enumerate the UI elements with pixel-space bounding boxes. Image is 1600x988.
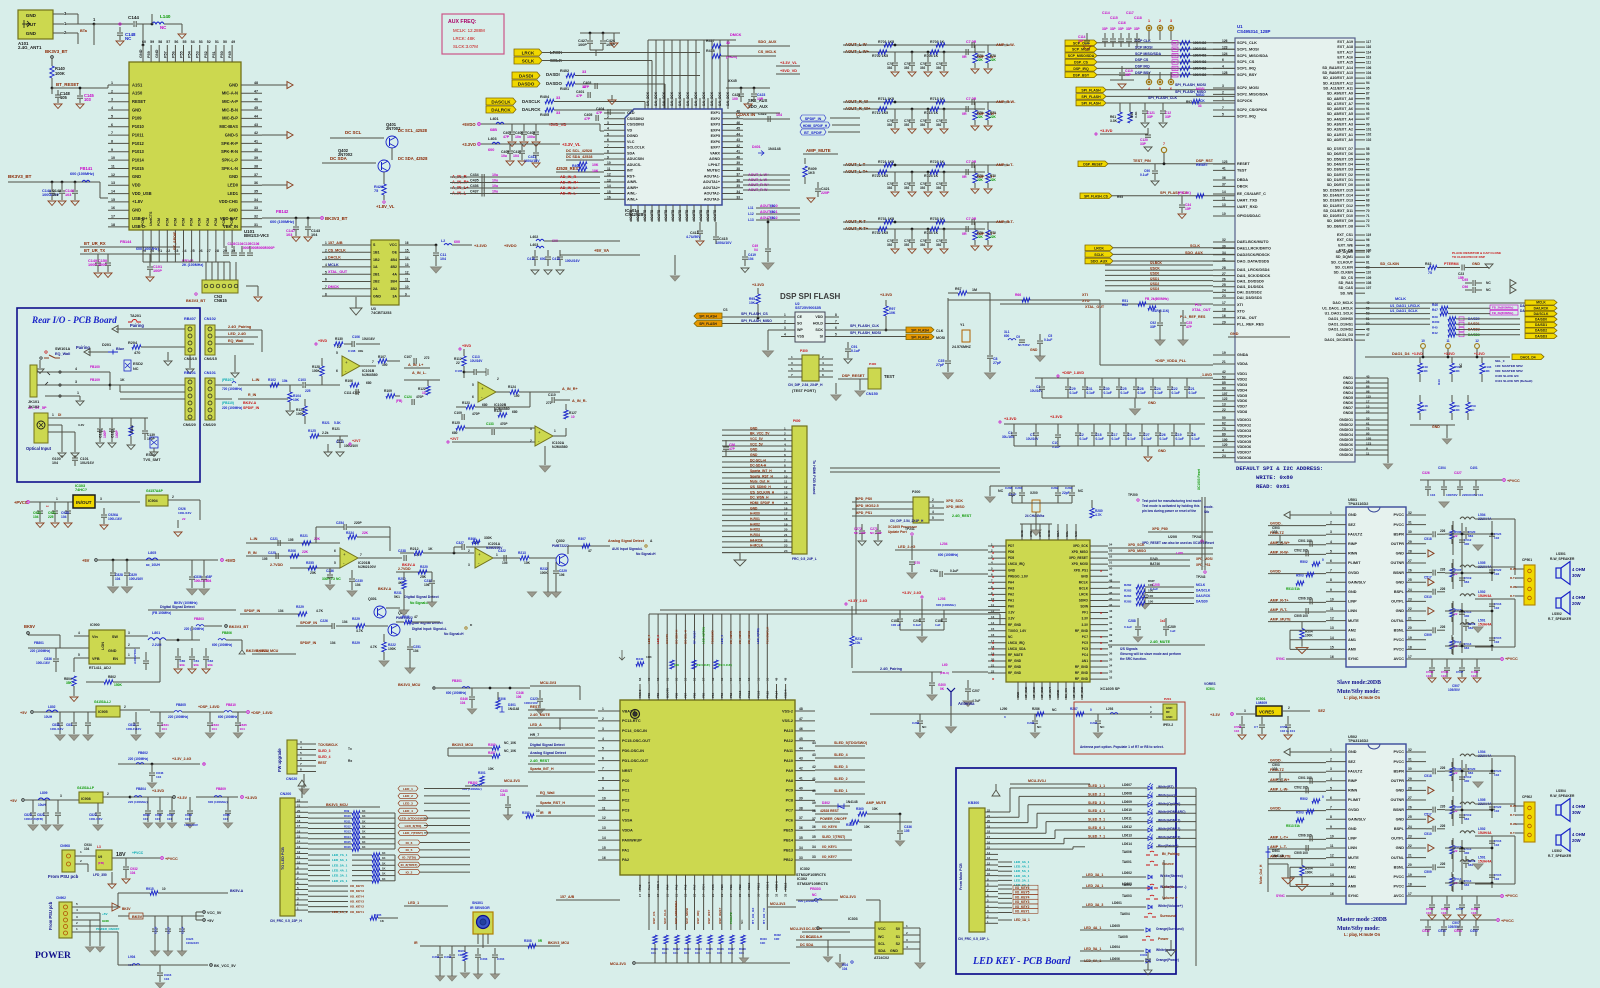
svg-text:I2S Signals: I2S Signals <box>1120 647 1138 651</box>
svg-text:FB_2k(600MHz): FB_2k(600MHz) <box>1492 311 1513 315</box>
svg-text:U1_DAO1_SCLK: U1_DAO1_SCLK <box>1390 309 1418 313</box>
svg-text:DAO1_D3: DAO1_D3 <box>1336 333 1353 337</box>
svg-text:NRST: NRST <box>622 769 633 773</box>
svg-text:G4157A&P: G4157A&P <box>146 489 164 493</box>
svg-text:20W: 20W <box>1572 601 1581 606</box>
svg-text:R704 1K: R704 1K <box>924 54 939 58</box>
svg-text:DAO1_D4: DAO1_D4 <box>1392 352 1410 356</box>
svg-text:GNDIO7: GNDIO7 <box>1339 448 1353 452</box>
svg-text:Digital Signal Detect: Digital Signal Detect <box>404 595 440 599</box>
svg-text:40: 40 <box>254 148 258 152</box>
svg-text:P59: P59 <box>656 692 660 698</box>
svg-text:40: 40 <box>736 155 740 159</box>
svg-text:MIC-A-N: MIC-A-N <box>222 91 238 96</box>
svg-text:DAI_D3/DSD3: DAI_D3/DSD3 <box>1237 296 1262 300</box>
svg-text:103: 103 <box>1272 530 1278 534</box>
svg-text:PC8: PC8 <box>786 799 793 803</box>
svg-text:40: 40 <box>1109 627 1113 631</box>
svg-text:52: 52 <box>1109 555 1113 559</box>
svg-text:0.1uF: 0.1uF <box>1155 391 1163 395</box>
svg-text:37: 37 <box>736 173 740 177</box>
svg-text:5: 5 <box>1159 87 1161 91</box>
svg-text:48: 48 <box>254 81 258 85</box>
svg-text:7: 7 <box>1163 142 1165 146</box>
svg-text:4: 4 <box>607 127 609 131</box>
svg-text:C106: C106 <box>352 335 360 339</box>
svg-text:54: 54 <box>191 40 195 44</box>
svg-text:PC10: PC10 <box>756 690 760 698</box>
svg-text:R513 51k: R513 51k <box>1286 824 1300 828</box>
svg-text:LD602: LD602 <box>1122 871 1132 875</box>
svg-text:Q302: Q302 <box>556 539 565 543</box>
svg-text:41: 41 <box>812 777 816 781</box>
svg-text:392: 392 <box>920 186 926 190</box>
svg-text:FB805: FB805 <box>176 703 186 707</box>
svg-text:XX45: XX45 <box>728 79 737 83</box>
svg-text:XTO: XTO <box>1237 310 1245 314</box>
svg-text:L802: L802 <box>48 705 56 709</box>
svg-text:C144: C144 <box>128 15 139 20</box>
svg-text:684: 684 <box>1464 646 1469 650</box>
svg-text:3A: 3A <box>392 294 397 298</box>
svg-text:46: 46 <box>254 98 258 102</box>
svg-text:VDD-1: VDD-1 <box>775 881 779 890</box>
svg-text:DGND: DGND <box>627 134 638 138</box>
svg-text:22K: 22K <box>990 115 997 119</box>
svg-text:9: 9 <box>602 786 604 790</box>
svg-text:R212: R212 <box>410 547 419 551</box>
svg-text:5: 5 <box>835 333 837 337</box>
svg-text:+3.3VD: +3.3VD <box>245 796 257 800</box>
svg-text:2: 2 <box>107 792 109 796</box>
svg-text:GND: GND <box>229 208 238 213</box>
svg-text:8: 8 <box>1330 815 1332 819</box>
svg-text:R102: R102 <box>268 378 276 382</box>
svg-text:LED_1A_1: LED_1A_1 <box>332 910 348 914</box>
svg-text:SLED_4: SLED_4 <box>834 753 848 757</box>
svg-text:MUTE: MUTE <box>1348 619 1359 623</box>
svg-text:LED_4A_1: LED_4A_1 <box>1014 865 1030 869</box>
svg-text:L205: L205 <box>1176 551 1183 555</box>
svg-text:11: 11 <box>1446 339 1450 343</box>
svg-text:AINL-: AINL- <box>627 192 638 196</box>
svg-text:SAI_DCK: SAI_DCK <box>710 91 714 106</box>
svg-text:LED_1A_1: LED_1A_1 <box>1014 918 1030 922</box>
svg-text:119: 119 <box>1366 233 1371 237</box>
svg-text:1K: 1K <box>362 819 366 823</box>
svg-text:12: 12 <box>297 850 301 854</box>
svg-text:220 (100MHz): 220 (100MHz) <box>222 406 242 410</box>
svg-text:105/50V: 105/50V <box>1448 688 1461 692</box>
svg-text:SD_D1/EXT_D1: SD_D1/EXT_D1 <box>1327 178 1353 182</box>
svg-text:P1011: P1011 <box>132 132 144 137</box>
svg-text:DC-SDA-H: DC-SDA-H <box>750 464 767 468</box>
svg-text:R229: R229 <box>352 617 360 621</box>
svg-text:VCC_5V: VCC_5V <box>207 911 222 915</box>
svg-text:SD_A0/EXT_A0: SD_A0/EXT_A0 <box>1327 138 1353 142</box>
svg-text:R220: R220 <box>420 565 428 569</box>
svg-text:330: 330 <box>1464 542 1469 546</box>
svg-text:RESET: RESET <box>132 99 146 104</box>
svg-text:+5VDO: +5VDO <box>504 244 517 248</box>
svg-text:10u: 10u <box>492 173 498 177</box>
svg-text:IR: IR <box>414 941 418 945</box>
svg-text:PD7: PD7 <box>1008 544 1014 548</box>
svg-text:4: 4 <box>300 746 302 750</box>
svg-text:100L/16V: 100L/16V <box>50 727 64 731</box>
svg-text:6: 6 <box>1222 58 1224 62</box>
svg-text:SCP1_BSY: SCP1_BSY <box>1237 73 1257 77</box>
svg-text:I/O_KEY7: I/O_KEY7 <box>822 855 837 859</box>
svg-text:DSP_IRQ: DSP_IRQ <box>696 910 700 924</box>
svg-text:54: 54 <box>1109 542 1113 546</box>
svg-text:KB300: KB300 <box>968 801 979 805</box>
svg-text:Test mode is activated by hold: Test mode is activated by holding this <box>1142 504 1200 508</box>
svg-text:41: 41 <box>254 139 258 143</box>
svg-text:65: 65 <box>1366 183 1370 187</box>
svg-text:TP243: TP243 <box>1196 575 1206 579</box>
svg-text:GND: GND <box>1166 715 1172 719</box>
svg-text:104: 104 <box>1441 674 1446 678</box>
svg-text:13: 13 <box>405 263 409 267</box>
svg-text:94: 94 <box>1366 81 1370 85</box>
svg-text:EE_CS/UART_C: EE_CS/UART_C <box>1237 192 1266 196</box>
svg-text:H-RX2: H-RX2 <box>750 522 760 526</box>
svg-text:4: 4 <box>784 333 786 337</box>
svg-text:DI: DI <box>58 413 61 417</box>
svg-text:SCL: SCL <box>1065 531 1069 537</box>
svg-text:NC: NC <box>1459 363 1463 368</box>
svg-text:AM0: AM0 <box>1348 885 1356 889</box>
svg-text:PA12: PA12 <box>784 739 793 743</box>
svg-text:DC_WSN_H: DC_WSN_H <box>750 496 769 500</box>
svg-text:1K: 1K <box>382 867 386 871</box>
svg-text:AD_IN_L+: AD_IN_L+ <box>560 186 579 190</box>
svg-text:45: 45 <box>254 106 258 110</box>
svg-text:0.1uF: 0.1uF <box>1138 391 1146 395</box>
svg-text:57: 57 <box>166 40 170 44</box>
svg-text:CS495314_128P: CS495314_128P <box>1237 29 1271 34</box>
svg-text:C290: C290 <box>1027 721 1035 725</box>
svg-text:100: 100 <box>732 97 738 101</box>
svg-text:SDA: SDA <box>1056 530 1060 537</box>
svg-text:14: 14 <box>602 836 606 840</box>
svg-text:I/O_KEY4: I/O_KEY4 <box>1015 895 1030 899</box>
svg-text:33: 33 <box>556 96 560 100</box>
svg-text:0.1uF: 0.1uF <box>1121 391 1129 395</box>
svg-text:LED_4A_1: LED_4A_1 <box>1014 874 1030 878</box>
svg-text:OUTNL: OUTNL <box>1391 619 1405 623</box>
svg-text:4: 4 <box>822 361 824 365</box>
svg-text:SAI_DCK: SAI_DCK <box>686 91 690 106</box>
svg-text:47P: 47P <box>729 447 736 451</box>
svg-text:C104: C104 <box>236 242 244 246</box>
svg-text:RF_GND: RF_GND <box>1008 665 1022 669</box>
svg-text:R418: R418 <box>706 49 715 53</box>
svg-text:330: 330 <box>1464 779 1469 783</box>
svg-text:29: 29 <box>1408 540 1412 544</box>
svg-text:GND: GND <box>229 174 238 179</box>
svg-text:BAT46: BAT46 <box>1150 562 1160 566</box>
svg-text:GND: GND <box>1047 529 1051 537</box>
svg-text:P60: P60 <box>647 692 651 698</box>
svg-text:102: 102 <box>1494 877 1499 881</box>
svg-text:+: + <box>481 386 484 391</box>
svg-text:3: 3 <box>1330 530 1332 534</box>
svg-text:VCC_5V: VCC_5V <box>750 437 764 441</box>
svg-text:AUX Input Signal=L: AUX Input Signal=L <box>612 547 643 551</box>
svg-text:16: 16 <box>784 506 788 510</box>
svg-text:BK3V3_BT: BK3V3_BT <box>8 174 32 179</box>
svg-text:SPI_FLASH: SPI_FLASH <box>699 315 717 319</box>
svg-text:L290: L290 <box>1000 707 1007 711</box>
svg-text:100: 100 <box>1148 583 1153 587</box>
svg-text:GND: GND <box>108 649 117 653</box>
svg-text:TA603: TA603 <box>1122 894 1132 898</box>
svg-text:D401: D401 <box>752 145 761 149</box>
svg-text:13: 13 <box>607 178 611 182</box>
svg-text:DBDA: DBDA <box>1237 178 1248 182</box>
svg-text:GND: GND <box>26 13 37 18</box>
svg-text:C434: C434 <box>470 173 479 177</box>
svg-text:27: 27 <box>1408 559 1412 563</box>
svg-text:C95: C95 <box>1462 278 1468 282</box>
svg-text:15: 15 <box>1330 645 1334 649</box>
svg-text:L805: L805 <box>148 551 156 555</box>
svg-text:IO_2: IO_2 <box>406 870 413 874</box>
svg-text:10: 10 <box>1330 834 1334 838</box>
svg-text:4: 4 <box>602 737 604 741</box>
svg-text:VDD-CHG: VDD-CHG <box>219 199 238 204</box>
svg-text:GPIO3/DDAC: GPIO3/DDAC <box>1237 214 1261 218</box>
svg-text:(FB-0): (FB-0) <box>940 671 949 675</box>
svg-text:LED_3: LED_3 <box>720 635 724 644</box>
svg-text:56: 56 <box>174 40 178 44</box>
svg-text:5: 5 <box>1222 113 1224 117</box>
svg-text:59: 59 <box>150 40 154 44</box>
svg-text:87: 87 <box>1366 92 1370 96</box>
svg-text:U1_DAO1_LRCLK: U1_DAO1_LRCLK <box>1322 306 1353 310</box>
svg-text:104: 104 <box>206 579 212 583</box>
svg-text:P300: P300 <box>800 349 808 353</box>
svg-text:33P: 33P <box>1126 27 1133 31</box>
svg-text:L13: L13 <box>748 218 754 222</box>
svg-text:+5V_VA: +5V_VA <box>594 248 609 253</box>
svg-text:LED_3A_3: LED_3A_3 <box>1086 903 1103 907</box>
svg-text:LD612: LD612 <box>1122 825 1132 829</box>
svg-text:104: 104 <box>167 817 172 821</box>
svg-text:SPI_FLASH: SPI_FLASH <box>1081 102 1101 106</box>
svg-text:61: 61 <box>1366 422 1370 426</box>
svg-text:330K: 330K <box>484 536 493 540</box>
svg-text:UART_RXD: UART_RXD <box>1237 205 1258 209</box>
svg-text:14: 14 <box>1330 636 1334 640</box>
svg-text:CS/SDIN2: CS/SDIN2 <box>627 117 644 121</box>
svg-text:104: 104 <box>52 461 58 465</box>
svg-text:POWER: POWER <box>35 951 71 961</box>
svg-text:GND8: GND8 <box>1343 411 1353 415</box>
svg-text:90k: 90k <box>358 349 363 353</box>
svg-text:58: 58 <box>1366 147 1370 151</box>
svg-text:RINN: RINN <box>1348 789 1358 793</box>
svg-text:C294: C294 <box>1090 721 1098 725</box>
svg-text:SAI_DCK: SAI_DCK <box>694 91 698 106</box>
svg-text:LED_5(TDO/SWO): LED_5(TDO/SWO) <box>400 816 426 820</box>
svg-text:2.4G_MUTE: 2.4G_MUTE <box>530 713 551 717</box>
svg-text:MCU-3V3: MCU-3V3 <box>790 927 805 931</box>
svg-text:LED_6(TDI): LED_6(TDI) <box>405 824 422 828</box>
svg-text:104: 104 <box>1441 911 1446 915</box>
svg-text:RF_GND: RF_GND <box>1075 671 1089 675</box>
svg-text:12: 12 <box>602 816 606 820</box>
svg-text:1: 1 <box>791 355 793 359</box>
svg-text:SPI_FLASH: SPI_FLASH <box>911 335 929 339</box>
svg-text:SLED_6_1: SLED_6_1 <box>1088 826 1105 830</box>
svg-text:PA3: PA3 <box>638 884 642 890</box>
svg-text:22: 22 <box>182 517 186 521</box>
svg-text:TEST_PIN: TEST_PIN <box>1133 159 1151 163</box>
svg-text:47: 47 <box>254 89 258 93</box>
svg-text:GVDD: GVDD <box>1348 808 1359 812</box>
svg-text:Sparta_RST_H: Sparta_RST_H <box>750 474 774 478</box>
svg-text:4.7K: 4.7K <box>370 645 378 649</box>
svg-text:PA8: PA8 <box>786 779 793 783</box>
svg-text:392: 392 <box>904 186 910 190</box>
svg-text:1: 1 <box>52 413 54 417</box>
svg-text:RF_MATE: RF_MATE <box>1008 653 1023 657</box>
svg-text:2: 2 <box>80 859 82 863</box>
svg-text:PC7: PC7 <box>786 809 793 813</box>
svg-text:REST: REST <box>530 705 540 709</box>
svg-text:4: 4 <box>1330 540 1332 544</box>
svg-text:33: 33 <box>784 893 788 897</box>
svg-text:EXT_A16: EXT_A16 <box>1337 56 1353 60</box>
svg-text:FB806: FB806 <box>222 631 232 635</box>
svg-text:C115: C115 <box>1110 16 1118 20</box>
svg-text:BK5V (100MHz): BK5V (100MHz) <box>174 601 197 605</box>
svg-text:RST-: RST- <box>627 174 636 178</box>
svg-text:AMP_MUTE: AMP_MUTE <box>1270 618 1291 622</box>
svg-text:LRCK: 48K: LRCK: 48K <box>453 36 475 41</box>
svg-text:LD610: LD610 <box>1122 808 1132 812</box>
svg-text:AGND: AGND <box>709 157 720 161</box>
svg-text:+5V: +5V <box>10 799 17 803</box>
svg-text:6: 6 <box>822 367 824 371</box>
svg-text:100/0402: 100/0402 <box>1193 73 1207 77</box>
svg-text:R503: R503 <box>1296 574 1304 578</box>
svg-text:103: 103 <box>1366 76 1372 80</box>
svg-text:TPA3116D2: TPA3116D2 <box>1348 502 1368 506</box>
svg-text:SD_DQM0: SD_DQM0 <box>1336 250 1353 254</box>
svg-text:VDD1: VDD1 <box>1237 372 1247 376</box>
svg-text:CP501: CP501 <box>1522 558 1532 562</box>
svg-text:38: 38 <box>799 806 803 810</box>
svg-text:26: 26 <box>1408 569 1412 573</box>
svg-text:X100 SLAVE I2C: X100 SLAVE I2C <box>1495 374 1520 378</box>
svg-text:PB12: PB12 <box>784 858 794 862</box>
svg-text:XPD_MOS2.5: XPD_MOS2.5 <box>856 504 879 508</box>
svg-text:38: 38 <box>812 809 816 813</box>
svg-text:24: 24 <box>1408 588 1412 592</box>
svg-text:MUTE: MUTE <box>1348 856 1359 860</box>
svg-text:DC SCL_42528: DC SCL_42528 <box>398 128 428 133</box>
svg-text:RF_RXD?: RF_RXD? <box>693 630 697 644</box>
svg-text:MCLK: 12.288M: MCLK: 12.288M <box>453 28 485 33</box>
svg-text:90k: 90k <box>208 663 213 667</box>
svg-text:1B2: 1B2 <box>373 258 380 262</box>
svg-text:220 (100MHz): 220 (100MHz) <box>168 715 188 719</box>
svg-text:GND: GND <box>102 919 110 923</box>
svg-text:104: 104 <box>212 727 217 731</box>
svg-text:1: 1 <box>602 707 604 711</box>
svg-text:0R: 0R <box>538 939 543 943</box>
svg-text:L: play, H:mute On: L: play, H:mute On <box>1344 932 1381 937</box>
svg-text:23: 23 <box>1222 294 1226 298</box>
svg-text:LED_2: LED_2 <box>403 794 413 798</box>
svg-text:No Signal=H: No Signal=H <box>444 632 464 636</box>
svg-text:LRCK: LRCK <box>1094 246 1104 250</box>
svg-text:47: 47 <box>1366 333 1370 337</box>
svg-text:XC1605 SP: XC1605 SP <box>1100 687 1120 691</box>
svg-text:103: 103 <box>1272 767 1278 771</box>
svg-text:R107: R107 <box>378 355 386 359</box>
svg-text:BK3V-A: BK3V-A <box>243 401 257 405</box>
svg-text:58: 58 <box>158 40 162 44</box>
svg-text:AINR+: AINR+ <box>627 186 638 190</box>
svg-text:24: 24 <box>1408 825 1412 829</box>
svg-text:PA1: PA1 <box>1008 599 1014 603</box>
svg-text:SEZ: SEZ <box>1318 709 1326 713</box>
svg-text:21: 21 <box>1408 617 1412 621</box>
svg-text:XTI: XTI <box>1237 303 1243 307</box>
svg-text:0.1uF: 0.1uF <box>1189 391 1197 395</box>
svg-text:100P: 100P <box>103 429 107 438</box>
svg-text:Antenna port option. Populate: Antenna port option. Populate 1 of R7 or… <box>1080 745 1164 749</box>
svg-text:45: 45 <box>799 737 803 741</box>
svg-text:30: 30 <box>1408 530 1412 534</box>
svg-text:220 (100MHz): 220 (100MHz) <box>128 800 148 804</box>
svg-text:C937: C937 <box>167 926 171 934</box>
svg-text:104: 104 <box>1426 911 1431 915</box>
svg-text:DASDO: DASDO <box>518 82 535 87</box>
svg-text:684: 684 <box>1468 534 1473 538</box>
svg-text:226: 226 <box>1440 862 1446 866</box>
svg-text:21: 21 <box>784 533 788 537</box>
svg-text:R314: R314 <box>344 835 351 839</box>
svg-text:C400: C400 <box>1470 929 1478 933</box>
svg-text:SD_D2/EXT_D2: SD_D2/EXT_D2 <box>1327 173 1353 177</box>
svg-text:100: 100 <box>1148 589 1153 593</box>
svg-text:106: 106 <box>516 695 522 699</box>
svg-text:PC15-OSC-OUT: PC15-OSC-OUT <box>622 739 651 743</box>
svg-text:3: 3 <box>1330 767 1332 771</box>
svg-text:3.3V: 3.3V <box>1008 611 1015 615</box>
svg-text:C221: C221 <box>270 537 278 541</box>
svg-text:EXT_CS1: EXT_CS1 <box>1337 233 1353 237</box>
svg-text:RF_GND: RF_GND <box>1008 671 1022 675</box>
svg-text:GND: GND <box>1230 332 1239 336</box>
svg-text:XTAL_OUT: XTAL_OUT <box>1085 305 1105 309</box>
svg-text:33: 33 <box>556 111 560 115</box>
svg-text:SDA: SDA <box>627 151 635 155</box>
svg-text:104: 104 <box>330 641 336 645</box>
svg-text:PA1: PA1 <box>622 848 629 852</box>
svg-text:RF_GND: RF_GND <box>1075 677 1089 681</box>
svg-text:AOUTB: AOUTB <box>629 209 633 221</box>
svg-text:NC: NC <box>160 25 167 30</box>
svg-text:I/O_KEY5: I/O_KEY5 <box>350 884 364 888</box>
svg-text:22: 22 <box>1408 607 1412 611</box>
